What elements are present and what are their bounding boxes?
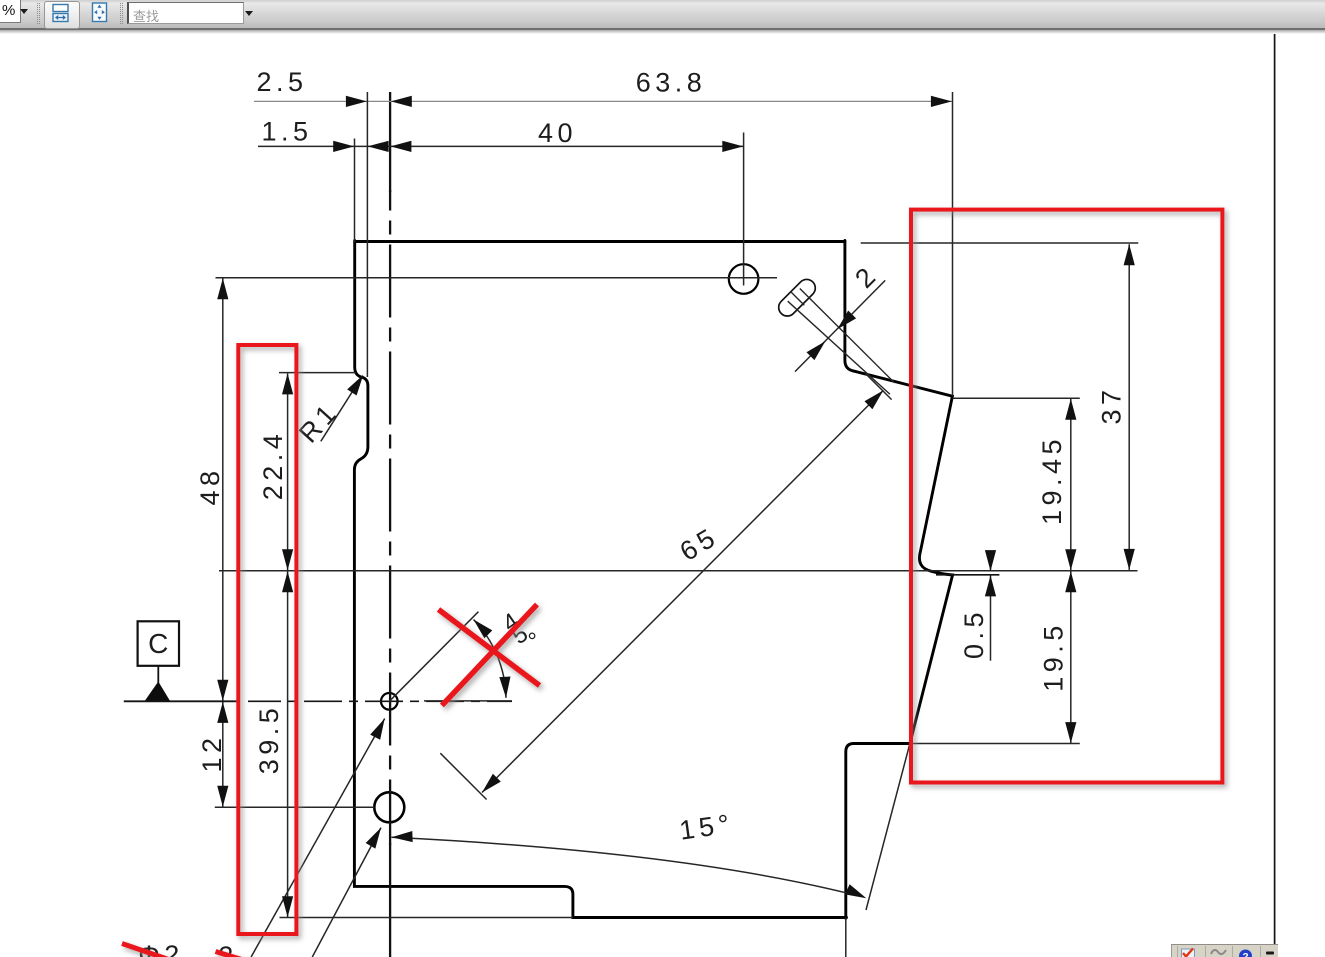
svg-text:°: °: [524, 624, 551, 654]
svg-text:63.8: 63.8: [636, 68, 707, 98]
svg-text:?: ?: [1242, 952, 1248, 957]
svg-text:2.5: 2.5: [256, 67, 307, 97]
svg-text:12: 12: [197, 733, 227, 772]
svg-text:2: 2: [849, 259, 884, 294]
svg-text:39.5: 39.5: [254, 704, 284, 775]
svg-text:37: 37: [1097, 385, 1127, 424]
svg-text:19.45: 19.45: [1037, 435, 1067, 525]
svg-text:22.4: 22.4: [258, 430, 288, 501]
svg-text:19.5: 19.5: [1039, 621, 1069, 692]
svg-text:1.5: 1.5: [261, 117, 312, 147]
svg-text:48: 48: [195, 466, 225, 505]
svg-text:R1: R1: [293, 396, 344, 448]
svg-text:0.5: 0.5: [959, 608, 989, 659]
svg-text:65: 65: [675, 521, 724, 567]
svg-text:C: C: [148, 628, 168, 659]
svg-text:40: 40: [538, 118, 577, 148]
svg-text:15°: 15°: [678, 808, 736, 845]
